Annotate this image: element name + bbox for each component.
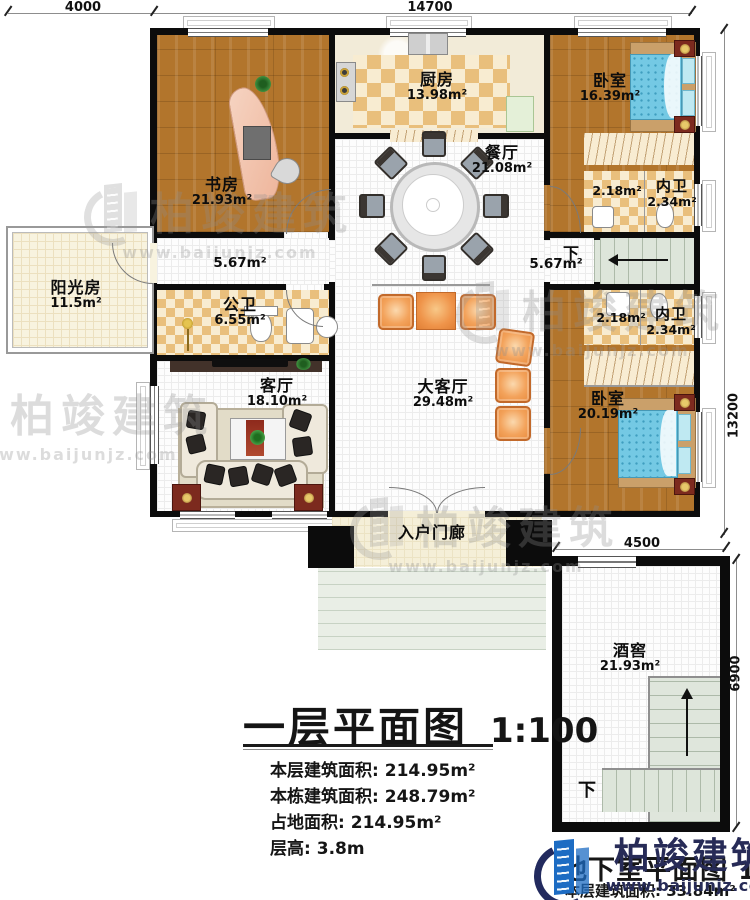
bed-bottom-pillow xyxy=(678,447,691,474)
kitchen-sink xyxy=(408,33,448,55)
sofa-cushion xyxy=(204,464,224,484)
label-sunroom: 阳光房 11.5m² xyxy=(31,279,121,312)
porch-pillar-right xyxy=(506,520,552,566)
company-logo-icon xyxy=(536,838,602,898)
title-underline-thin xyxy=(243,749,493,750)
tv xyxy=(212,359,288,367)
label-cellar-down: 下 xyxy=(578,776,596,802)
kitchen-counter xyxy=(506,96,534,132)
window-study xyxy=(188,28,268,37)
label-great-hall: 大客厅 29.48m² xyxy=(398,378,488,411)
desk-monitor xyxy=(243,126,271,160)
desk-plant xyxy=(255,76,271,92)
stat-line: 层高: 3.8m xyxy=(270,836,476,862)
sofa-cushion xyxy=(187,411,206,430)
label-cellar: 酒窖 21.93m² xyxy=(585,642,675,675)
label-study: 书房 21.93m² xyxy=(177,176,267,209)
dim-tick xyxy=(552,541,560,552)
stat-line: 占地面积: 214.95m² xyxy=(270,810,476,836)
window-bedroom-top xyxy=(578,28,666,37)
dim-tick xyxy=(688,5,696,16)
opening-stairs xyxy=(594,240,600,282)
closet-bottom-edge xyxy=(584,385,694,387)
armchair xyxy=(378,294,414,330)
tea-table xyxy=(416,292,456,330)
label-dining: 餐厅 21.08m² xyxy=(457,144,547,177)
cellar-stairs-landing xyxy=(602,768,720,812)
dim-6900: 6900 xyxy=(729,644,744,704)
bed-top-pillow xyxy=(682,90,695,116)
stairs-arrow xyxy=(602,254,618,266)
label-porch: 入户门廊 xyxy=(377,524,487,542)
nightstand xyxy=(674,394,695,411)
window-sill xyxy=(702,52,716,132)
dim-tick xyxy=(722,541,730,552)
dim-13200: 13200 xyxy=(727,386,742,446)
label-living: 客厅 18.10m² xyxy=(232,377,322,410)
closet-bottom xyxy=(584,351,694,385)
company-logo: 柏竣建筑 www.baijunjz.com xyxy=(536,838,750,898)
dim-tick xyxy=(150,5,158,16)
window-sill xyxy=(136,382,150,470)
public-bath-lamp-stem xyxy=(187,329,189,351)
window-living-left xyxy=(150,386,159,464)
dining-chair xyxy=(422,131,446,157)
bed-top-duvet-fold xyxy=(664,54,680,118)
porch-pillar-left xyxy=(308,526,354,568)
cellar-stairs-arrow xyxy=(681,682,693,699)
armchair xyxy=(495,406,531,441)
dim-tick xyxy=(720,527,728,538)
label-hall-right: 5.67m² xyxy=(521,257,591,273)
window-cellar xyxy=(578,556,636,568)
armchair xyxy=(495,368,531,403)
end-table-left xyxy=(172,484,201,511)
dining-chair xyxy=(422,255,446,281)
armchair xyxy=(495,328,536,368)
bed-bottom-duvet-fold xyxy=(660,410,676,476)
end-table-right xyxy=(294,484,323,511)
window-living-bottom-1 xyxy=(180,511,235,519)
label-bath-bottom: 内卫 2.34m² xyxy=(633,306,709,338)
sofa-cushion xyxy=(293,437,312,456)
nightstand xyxy=(674,116,695,133)
label-public-bath: 公卫 6.55m² xyxy=(195,296,285,329)
entrance-steps xyxy=(318,568,546,650)
floor-plan-page: 4000 14700 13200 xyxy=(0,0,750,900)
dim-14700: 14700 xyxy=(392,0,468,15)
dining-table-center xyxy=(426,198,440,212)
stats-block: 本层建筑面积: 214.95m² 本栋建筑面积: 248.79m² 占地面积: … xyxy=(270,758,476,862)
window-sill xyxy=(702,408,716,488)
stat-line: 本栋建筑面积: 248.79m² xyxy=(270,784,476,810)
dim-line-13200 xyxy=(724,30,725,535)
label-kitchen: 厨房 13.98m² xyxy=(392,71,482,104)
stairs-direction-line xyxy=(610,259,668,261)
stove-burner xyxy=(340,86,349,95)
label-hall-left: 5.67m² xyxy=(205,256,275,272)
plant-on-cabinet xyxy=(296,358,311,370)
sofa-cushion xyxy=(229,467,249,487)
closet-top xyxy=(584,133,694,165)
label-bedroom-top: 卧室 16.39m² xyxy=(565,72,655,105)
bath-top-sink xyxy=(592,206,614,228)
coffee-table-plant xyxy=(250,430,265,445)
dim-tick xyxy=(732,821,740,832)
cellar-stairs-line xyxy=(686,692,688,756)
label-bath-top: 内卫 2.34m² xyxy=(634,178,710,210)
nightstand xyxy=(674,478,695,495)
hall-divider-line xyxy=(372,284,490,286)
bed-bottom-pillow xyxy=(678,414,691,441)
window-living-bottom-2 xyxy=(272,511,327,519)
label-bedroom-bottom: 卧室 20.19m² xyxy=(563,390,653,423)
nightstand xyxy=(674,40,695,57)
dim-4000: 4000 xyxy=(45,0,121,15)
bed-top-pillow xyxy=(682,58,695,84)
armchair xyxy=(460,294,496,330)
dining-chair xyxy=(483,194,509,218)
stove-burner xyxy=(340,68,349,77)
stat-line: 本层建筑面积: 214.95m² xyxy=(270,758,476,784)
watermark-logo-icon xyxy=(0,384,2,440)
public-bath-lamp xyxy=(182,318,193,329)
opening-hall-left xyxy=(329,240,335,282)
dim-tick xyxy=(4,5,12,16)
dining-chair xyxy=(359,194,385,218)
dim-4500: 4500 xyxy=(610,536,674,551)
title-underline xyxy=(243,744,493,747)
